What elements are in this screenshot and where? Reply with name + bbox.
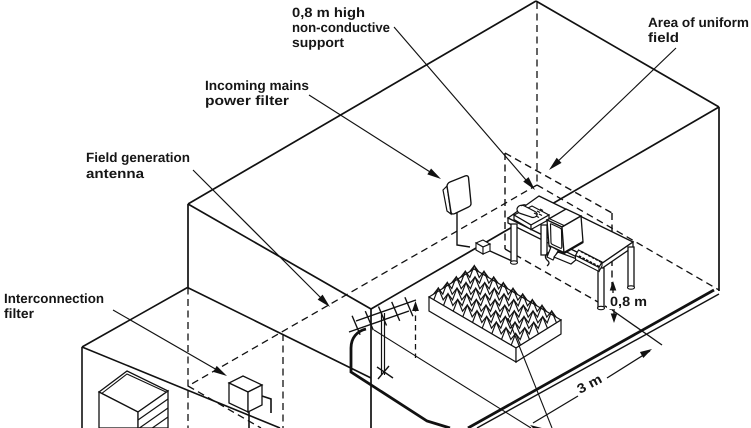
svg-text:0,8 m: 0,8 m xyxy=(610,294,647,309)
svg-text:support: support xyxy=(292,35,345,50)
svg-text:filter: filter xyxy=(4,306,35,321)
svg-text:field: field xyxy=(648,30,679,45)
svg-text:power filter: power filter xyxy=(205,93,290,108)
svg-text:Area of uniform: Area of uniform xyxy=(648,15,749,30)
svg-text:Field generation: Field generation xyxy=(86,150,190,165)
svg-text:Incoming mains: Incoming mains xyxy=(205,78,309,93)
svg-text:Interconnection: Interconnection xyxy=(4,291,104,306)
svg-text:antenna: antenna xyxy=(86,166,145,181)
svg-text:3 m: 3 m xyxy=(574,371,604,396)
svg-text:non-conductive: non-conductive xyxy=(292,20,390,35)
svg-text:0,8 m high: 0,8 m high xyxy=(292,5,365,20)
